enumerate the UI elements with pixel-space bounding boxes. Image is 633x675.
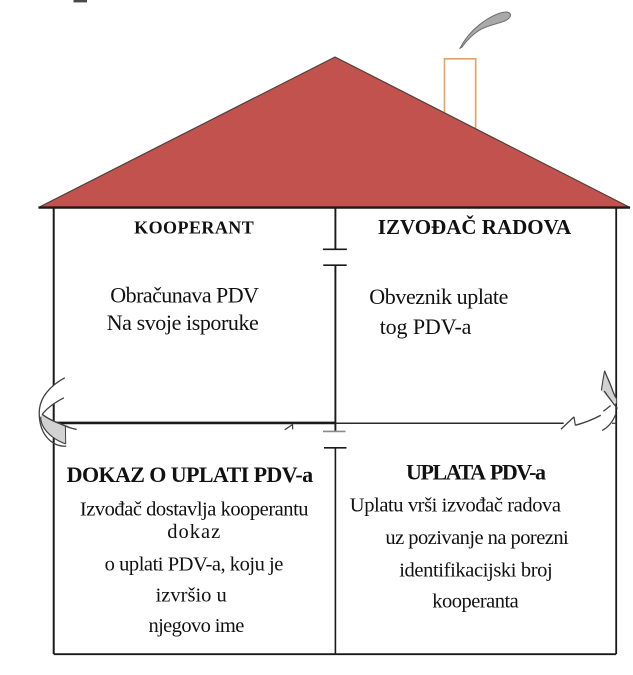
svg-text:tog PDV-a: tog PDV-a <box>380 314 472 339</box>
svg-text:Obračunava PDV: Obračunava PDV <box>110 282 259 307</box>
svg-text:uz pozivanje na porezni: uz pozivanje na porezni <box>385 527 569 549</box>
svg-text:njegovo ime: njegovo ime <box>148 615 244 637</box>
svg-text:DOKAZ O UPLATI PDV-a: DOKAZ O UPLATI PDV-a <box>67 462 313 487</box>
svg-text:Izvođač dostavlja kooperantu: Izvođač dostavlja kooperantu <box>80 499 308 521</box>
svg-text:Na svoje isporuke: Na svoje isporuke <box>107 310 259 335</box>
svg-text:dokaz: dokaz <box>167 521 221 543</box>
svg-text:KOOPERANT: KOOPERANT <box>134 218 254 238</box>
svg-text:kooperanta: kooperanta <box>432 591 518 613</box>
svg-text:izvršio u: izvršio u <box>156 584 227 606</box>
svg-text:Uplatu vrši izvođač radova: Uplatu vrši izvođač radova <box>350 495 561 517</box>
svg-text:identifikacijski broj: identifikacijski broj <box>399 559 552 581</box>
svg-text:o uplati PDV-a, koju je: o uplati PDV-a, koju je <box>105 554 284 576</box>
svg-text:IZVOĐAČ RADOVA: IZVOĐAČ RADOVA <box>378 215 572 239</box>
svg-text:Obveznik uplate: Obveznik uplate <box>369 284 508 309</box>
svg-text:UPLATA PDV-a: UPLATA PDV-a <box>406 460 546 485</box>
